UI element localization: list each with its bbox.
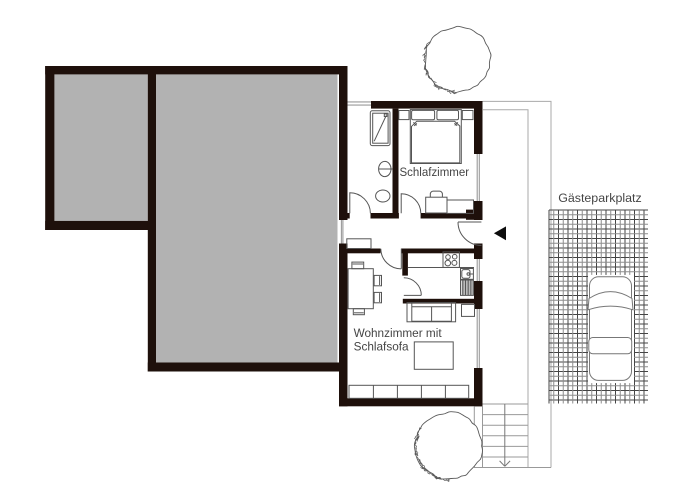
svg-text:Schlafsofa: Schlafsofa [354,339,409,353]
svg-text:Gästeparkplatz: Gästeparkplatz [558,191,642,205]
svg-text:Wohnzimmer mit: Wohnzimmer mit [354,326,443,340]
svg-text:Schlafzimmer: Schlafzimmer [400,165,470,179]
